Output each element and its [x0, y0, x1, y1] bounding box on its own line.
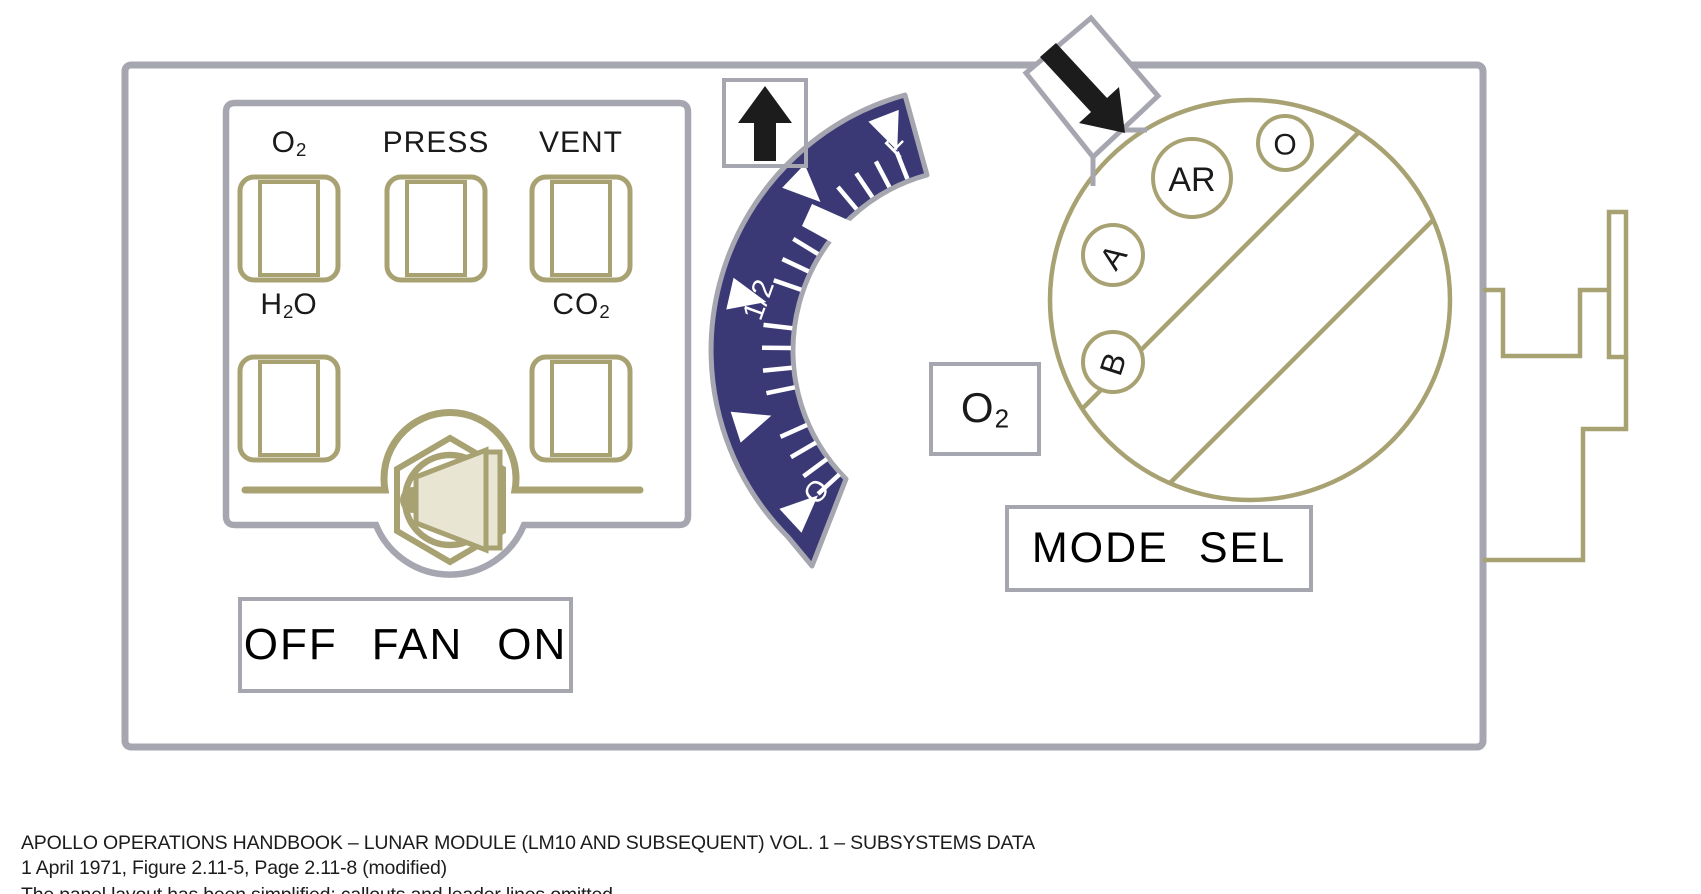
fan-switch-label-box: OFF FAN ON [238, 597, 573, 693]
mode-selector-knob: O AR A B [1050, 100, 1450, 500]
figure-stage: F 1/2 O O AR A B [0, 0, 1701, 894]
panel-mount-bracket [1483, 212, 1626, 560]
bracket-tab [1609, 212, 1626, 357]
o2-gauge-label-box: O2 [929, 362, 1041, 456]
caption-line2: 1 April 1971, Figure 2.11-5, Page 2.11-8… [21, 857, 447, 880]
mode-sel-label-box: MODE SEL [1005, 505, 1313, 592]
fan-switch-label-off: OFF [244, 620, 338, 670]
mode-sel-label-word2: SEL [1199, 524, 1286, 573]
mode-position-label-ar: AR [1168, 161, 1215, 199]
mode-selector-dial [1050, 100, 1450, 500]
label-o2: O2 [224, 126, 354, 161]
caption-line3-clipped: The panel layout has been simplified; ca… [21, 884, 613, 894]
gauge-minor-tick [763, 368, 792, 371]
up-arrow-box [722, 78, 808, 168]
bracket-upper-path [1483, 290, 1609, 356]
mode-position-label-o: O [1273, 129, 1296, 162]
label-vent: VENT [516, 126, 646, 160]
caption-line1: APOLLO OPERATIONS HANDBOOK – LUNAR MODUL… [21, 832, 1035, 855]
label-press: PRESS [371, 126, 501, 160]
fan-switch-label-on: ON [497, 620, 567, 670]
label-co2: CO2 [516, 288, 646, 323]
fan-knob-wing-cap [486, 452, 500, 548]
o2-gauge-label: O2 [961, 384, 1009, 435]
fan-switch-label-fan: FAN [372, 620, 464, 670]
mode-sel-label-word1: MODE [1032, 524, 1169, 573]
label-h2o: H2O [224, 288, 354, 323]
fan-switch-knob [397, 438, 503, 562]
bracket-lower-path [1483, 357, 1626, 560]
